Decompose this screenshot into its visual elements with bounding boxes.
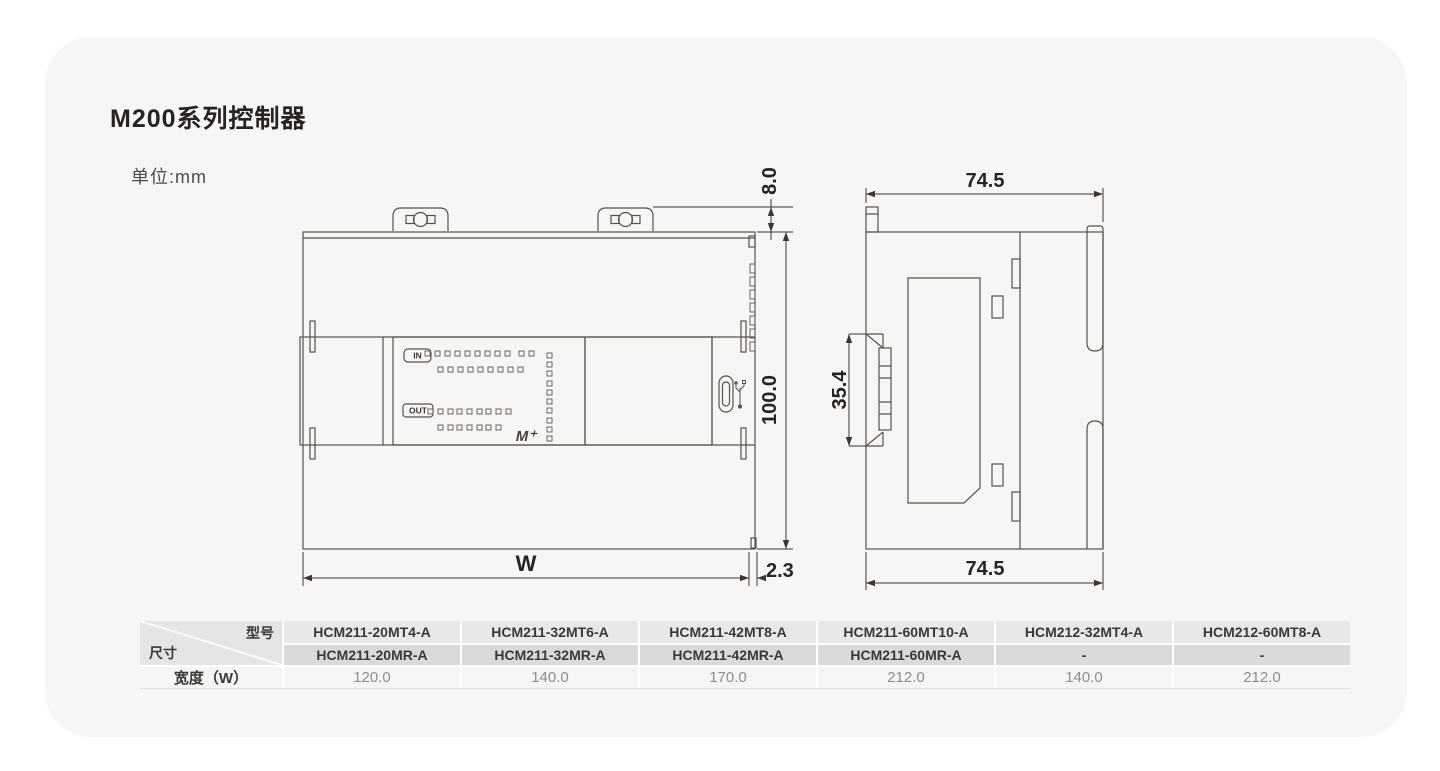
brand-logo: M⁺ [516, 428, 538, 445]
width-row-label: 宽度（W） [140, 667, 282, 688]
model-header-2: - [996, 645, 1172, 665]
model-header-2: HCM211-42MR-A [640, 645, 816, 665]
corner-label-size: 尺寸 [149, 643, 177, 663]
model-header-2: HCM211-20MR-A [284, 645, 460, 665]
dim-tab-height: 8.0 [759, 167, 781, 195]
dim-rail-height: 35.4 [829, 370, 851, 410]
page-title: M200系列控制器 [110, 99, 307, 135]
model-header: HCM211-42MT8-A [640, 621, 816, 643]
model-header: HCM211-60MT10-A [818, 621, 994, 643]
out-label: OUT [409, 406, 428, 416]
usb-icon [735, 381, 746, 409]
width-value: 212.0 [1174, 667, 1350, 688]
model-header: HCM211-20MT4-A [284, 621, 460, 643]
front-view-outline [300, 208, 756, 549]
page: M200系列控制器 单位:mm [0, 0, 1440, 771]
dim-depth-top: 74.5 [966, 170, 1005, 192]
content-card: M200系列控制器 单位:mm [45, 37, 1407, 737]
mounting-tab-left [393, 208, 448, 231]
din-rail-clip [866, 334, 891, 446]
dim-width-w: W [516, 551, 537, 576]
dim-body-height: 100.0 [759, 375, 781, 425]
width-value: 120.0 [284, 667, 460, 688]
dim-depth-bottom: 74.5 [966, 558, 1005, 580]
width-value: 170.0 [640, 667, 816, 688]
side-view-drawing: 74.5 74.5 35.4 [815, 150, 1135, 610]
model-header: HCM211-32MT6-A [462, 621, 638, 643]
table-corner-cell: 型号 尺寸 [140, 621, 282, 665]
in-label: IN [413, 351, 422, 361]
front-view-drawing: IN OUT M⁺ 8.0 100.0 W 2.3 [280, 150, 820, 600]
usb-c-port [719, 376, 733, 412]
width-value: 140.0 [462, 667, 638, 688]
side-dimension-lines [849, 188, 1103, 590]
dim-offset: 2.3 [766, 560, 794, 582]
dimensions-table: 型号 尺寸 HCM211-20MT4-A HCM211-32MT6-A HCM2… [140, 621, 1350, 689]
side-view-outline [866, 207, 1103, 549]
model-header: HCM212-60MT8-A [1174, 621, 1350, 643]
model-header: HCM212-32MT4-A [996, 621, 1172, 643]
width-value: 212.0 [818, 667, 994, 688]
mounting-tab-right [598, 208, 653, 231]
unit-label: 单位:mm [131, 163, 207, 189]
width-value: 140.0 [996, 667, 1172, 688]
model-header-2: - [1174, 645, 1350, 665]
model-header-2: HCM211-32MR-A [462, 645, 638, 665]
right-edge-vents [750, 264, 755, 351]
model-header-2: HCM211-60MR-A [818, 645, 994, 665]
corner-label-model: 型号 [246, 623, 274, 643]
